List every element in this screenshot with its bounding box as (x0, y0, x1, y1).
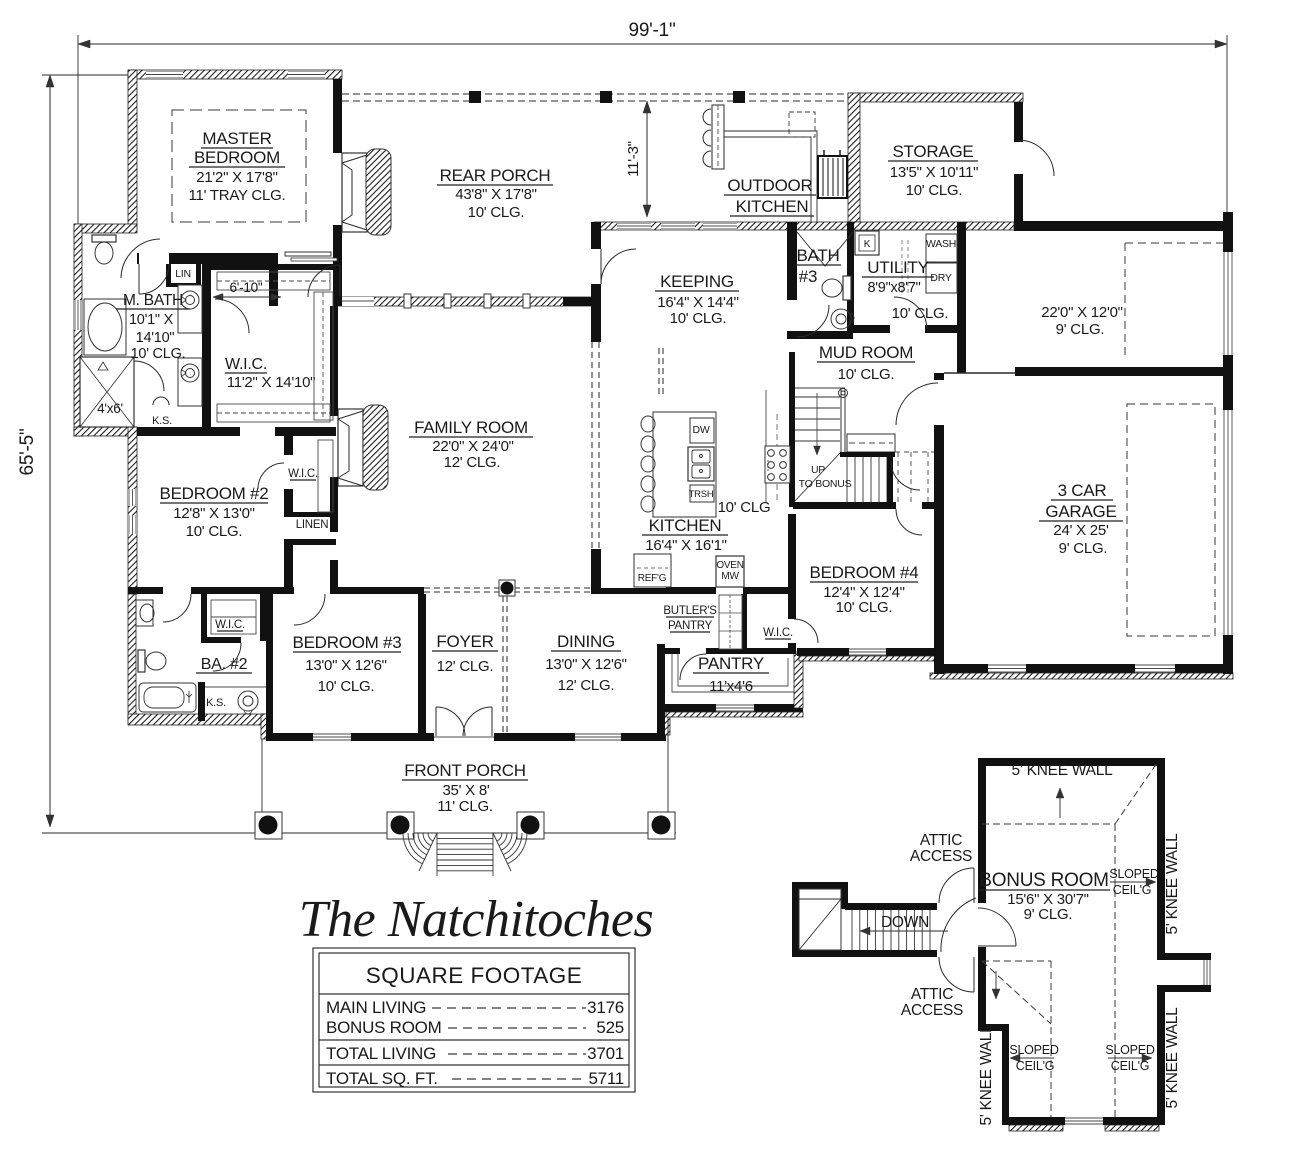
svg-text:22'0" X 24'0": 22'0" X 24'0" (432, 438, 514, 455)
svg-text:DRY: DRY (930, 272, 951, 284)
svg-text:TO BONUS: TO BONUS (799, 478, 852, 490)
svg-text:ACCESS: ACCESS (901, 1002, 963, 1019)
svg-text:10' CLG.: 10' CLG. (131, 346, 186, 362)
svg-text:13'0" X 12'6": 13'0" X 12'6" (305, 657, 387, 674)
svg-text:12' CLG.: 12' CLG. (437, 658, 494, 675)
svg-text:OUTDOOR: OUTDOOR (727, 176, 812, 195)
svg-text:9' CLG.: 9' CLG. (1024, 906, 1073, 923)
svg-text:65'-5": 65'-5" (17, 429, 38, 476)
svg-text:10' CLG.: 10' CLG. (836, 599, 893, 616)
svg-text:5' KNEE WALL: 5' KNEE WALL (1164, 833, 1181, 935)
svg-text:DINING: DINING (557, 632, 615, 651)
svg-text:8'9"x8'7": 8'9"x8'7" (867, 280, 920, 296)
svg-text:BEDROOM: BEDROOM (194, 148, 280, 167)
svg-text:KITCHEN: KITCHEN (736, 197, 809, 216)
svg-text:BEDROOM #2: BEDROOM #2 (160, 484, 269, 503)
svg-text:TOTAL LIVING: TOTAL LIVING (326, 1044, 436, 1063)
svg-text:BEDROOM #4: BEDROOM #4 (810, 563, 919, 582)
svg-text:13'5" X 10'11": 13'5" X 10'11" (890, 164, 979, 181)
svg-text:5711: 5711 (588, 1069, 624, 1088)
svg-text:10' CLG.: 10' CLG. (670, 310, 727, 327)
svg-text:13'0" X 12'6": 13'0" X 12'6" (545, 656, 627, 673)
svg-text:21'2" X 17'8": 21'2" X 17'8" (196, 169, 278, 186)
svg-text:W.I.C.: W.I.C. (763, 627, 793, 639)
svg-text:ATTIC: ATTIC (911, 986, 953, 1003)
svg-text:MASTER: MASTER (202, 129, 271, 148)
svg-text:10' CLG.: 10' CLG. (468, 204, 525, 221)
svg-text:99'-1": 99'-1" (629, 20, 676, 41)
svg-text:KITCHEN: KITCHEN (649, 516, 722, 535)
svg-text:BONUS ROOM: BONUS ROOM (979, 870, 1108, 891)
svg-text:UP: UP (811, 464, 825, 476)
svg-text:16'4" X 16'1": 16'4" X 16'1" (645, 537, 727, 554)
svg-text:PANTRY: PANTRY (668, 620, 713, 632)
svg-text:K.S.: K.S. (206, 697, 226, 709)
svg-text:PANTRY: PANTRY (698, 654, 764, 673)
svg-text:SLOPED: SLOPED (1105, 1043, 1154, 1057)
svg-text:STORAGE: STORAGE (892, 142, 973, 161)
svg-text:5' KNEE WALL: 5' KNEE WALL (1011, 762, 1113, 779)
svg-text:9' CLG.: 9' CLG. (1059, 540, 1108, 557)
svg-text:MAIN LIVING: MAIN LIVING (326, 998, 426, 1017)
svg-text:3 CAR: 3 CAR (1058, 481, 1107, 500)
svg-text:DW: DW (693, 424, 710, 436)
svg-text:11'-3": 11'-3" (625, 141, 642, 177)
svg-text:3701: 3701 (587, 1044, 624, 1063)
svg-text:SQUARE FOOTAGE: SQUARE FOOTAGE (366, 963, 583, 988)
svg-text:W.I.C.: W.I.C. (288, 468, 318, 480)
svg-text:LINEN: LINEN (296, 519, 329, 531)
svg-text:FAMILY ROOM: FAMILY ROOM (414, 418, 528, 437)
svg-text:REAR PORCH: REAR PORCH (440, 166, 551, 185)
svg-text:M. BATH: M. BATH (123, 292, 183, 309)
svg-text:9' CLG.: 9' CLG. (1056, 321, 1105, 338)
svg-text:22'0" X 12'0": 22'0" X 12'0" (1041, 304, 1123, 321)
svg-text:SLOPED: SLOPED (1109, 867, 1158, 881)
svg-text:CEIL'G: CEIL'G (1016, 1059, 1054, 1073)
svg-text:16'4" X 14'4": 16'4" X 14'4" (657, 294, 739, 311)
svg-text:BEDROOM #3: BEDROOM #3 (293, 633, 402, 652)
svg-text:11' CLG.: 11' CLG. (437, 798, 493, 815)
svg-text:14'10": 14'10" (136, 330, 175, 346)
svg-text:BATH: BATH (796, 246, 839, 265)
svg-text:24' X 25': 24' X 25' (1053, 522, 1109, 539)
svg-text:12' CLG.: 12' CLG. (444, 454, 501, 471)
svg-text:WASH: WASH (926, 238, 956, 250)
svg-text:ACCESS: ACCESS (910, 848, 972, 865)
svg-text:FOYER: FOYER (436, 632, 493, 651)
svg-text:10' CLG.: 10' CLG. (838, 366, 895, 383)
svg-text:11'x4'6: 11'x4'6 (709, 678, 753, 695)
svg-text:4'x6': 4'x6' (97, 401, 123, 416)
svg-text:OVEN: OVEN (716, 560, 743, 571)
svg-text:DOWN: DOWN (881, 914, 929, 931)
svg-text:10' CLG.: 10' CLG. (186, 523, 243, 540)
svg-text:K.S.: K.S. (152, 415, 172, 427)
svg-text:SLOPED: SLOPED (1009, 1043, 1058, 1057)
svg-text:FRONT PORCH: FRONT PORCH (404, 761, 526, 780)
svg-text:6'-10": 6'-10" (230, 280, 263, 295)
svg-text:The Natchitoches: The Natchitoches (299, 891, 654, 948)
svg-text:3176: 3176 (587, 998, 624, 1017)
svg-text:10' CLG.: 10' CLG. (318, 678, 375, 695)
svg-text:REF'G: REF'G (638, 573, 667, 584)
svg-text:43'8" X 17'8": 43'8" X 17'8" (455, 186, 537, 203)
svg-text:UTILITY: UTILITY (867, 258, 929, 277)
svg-text:K: K (864, 239, 871, 250)
svg-text:BONUS ROOM: BONUS ROOM (326, 1018, 442, 1037)
svg-text:525: 525 (596, 1018, 624, 1037)
svg-text:10' CLG: 10' CLG (718, 499, 771, 516)
svg-text:MW: MW (721, 571, 739, 582)
svg-text:11' TRAY CLG.: 11' TRAY CLG. (189, 187, 286, 204)
svg-text:W.I.C.: W.I.C. (225, 356, 267, 373)
svg-text:BUTLER'S: BUTLER'S (663, 605, 717, 617)
svg-text:10' CLG.: 10' CLG. (892, 305, 949, 322)
svg-text:TRSH: TRSH (689, 489, 714, 500)
svg-text:LIN: LIN (175, 268, 191, 280)
svg-text:35' X 8': 35' X 8' (442, 782, 489, 799)
svg-text:GARAGE: GARAGE (1045, 502, 1116, 521)
svg-text:KEEPING: KEEPING (660, 272, 734, 291)
svg-text:11'2" X 14'10": 11'2" X 14'10" (227, 374, 316, 391)
svg-text:5' KNEE WALL: 5' KNEE WALL (978, 1024, 995, 1126)
svg-text:W.I.C.: W.I.C. (215, 619, 245, 631)
svg-text:10'1" X: 10'1" X (129, 312, 174, 328)
svg-text:10' CLG.: 10' CLG. (906, 182, 963, 199)
svg-text:#3: #3 (799, 267, 817, 286)
svg-text:12' CLG.: 12' CLG. (558, 677, 615, 694)
svg-text:MUD ROOM: MUD ROOM (819, 343, 913, 362)
svg-text:12'8" X 13'0": 12'8" X 13'0" (173, 505, 255, 522)
svg-text:CEIL'G: CEIL'G (1113, 883, 1151, 897)
svg-text:ATTIC: ATTIC (920, 832, 962, 849)
svg-text:TOTAL SQ. FT.: TOTAL SQ. FT. (326, 1069, 438, 1088)
svg-text:BA. #2: BA. #2 (201, 656, 248, 673)
svg-text:5' KNEE WALL: 5' KNEE WALL (1164, 1007, 1181, 1109)
